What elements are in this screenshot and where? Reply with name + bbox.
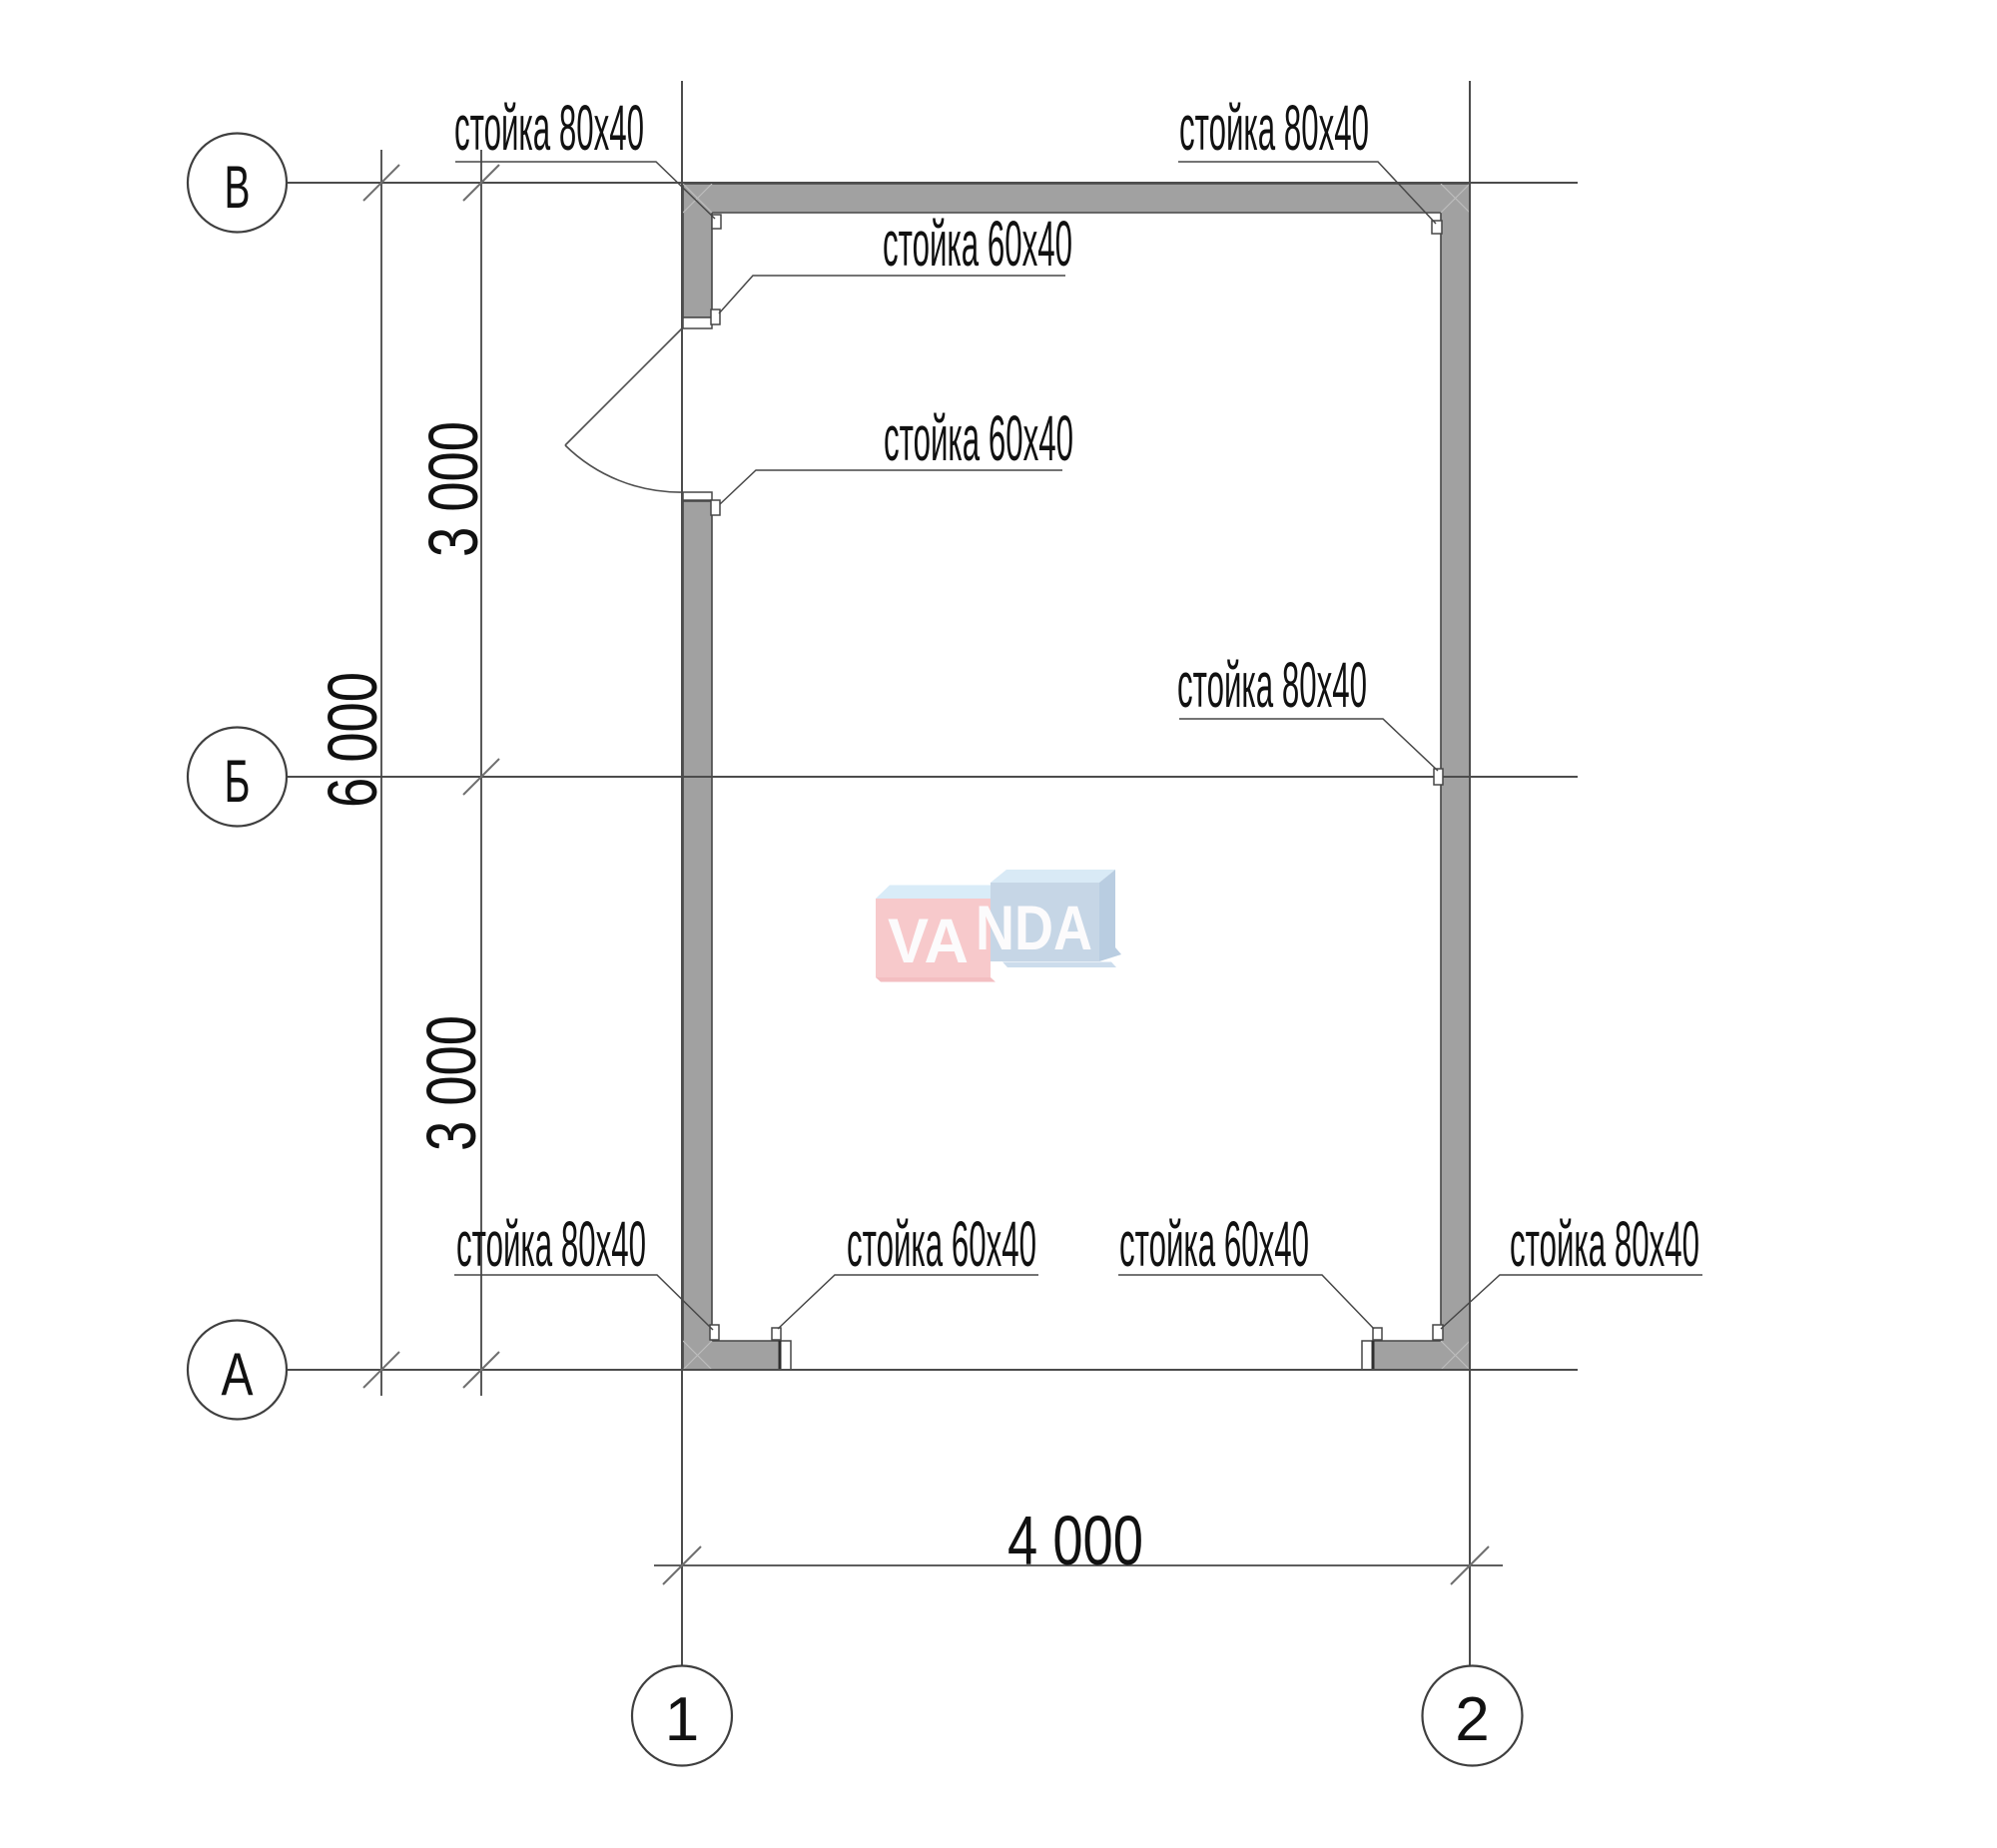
svg-text:стойка 60х40: стойка 60х40 xyxy=(883,208,1072,280)
svg-text:4 000: 4 000 xyxy=(1007,1502,1143,1579)
svg-text:стойка 60х40: стойка 60х40 xyxy=(884,402,1073,474)
svg-text:NDA: NDA xyxy=(976,894,1092,963)
svg-text:стойка 80х40: стойка 80х40 xyxy=(1177,649,1367,721)
svg-text:3 000: 3 000 xyxy=(412,1015,490,1151)
svg-text:стойка 80х40: стойка 80х40 xyxy=(454,92,644,164)
svg-text:стойка 80х40: стойка 80х40 xyxy=(1510,1208,1699,1280)
svg-text:Б: Б xyxy=(225,748,251,815)
svg-text:стойка 80х40: стойка 80х40 xyxy=(456,1208,646,1280)
svg-text:6 000: 6 000 xyxy=(314,672,391,808)
svg-text:стойка 60х40: стойка 60х40 xyxy=(1119,1208,1309,1280)
svg-text:В: В xyxy=(225,154,251,221)
svg-text:3 000: 3 000 xyxy=(414,421,492,557)
svg-text:VA: VA xyxy=(888,907,969,976)
svg-text:стойка 80х40: стойка 80х40 xyxy=(1179,92,1369,164)
svg-text:А: А xyxy=(222,1341,254,1408)
svg-text:1: 1 xyxy=(665,1685,699,1754)
svg-text:2: 2 xyxy=(1455,1685,1489,1754)
svg-text:стойка 60х40: стойка 60х40 xyxy=(847,1208,1036,1280)
